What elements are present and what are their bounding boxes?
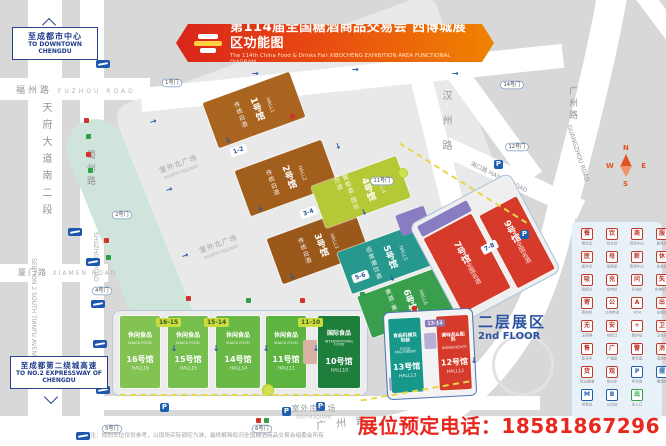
metro-icon xyxy=(93,340,107,348)
connector-15-14: 15-14 xyxy=(204,318,229,327)
route-arrow: → xyxy=(211,345,219,352)
legend-item: + 救护站 xyxy=(625,320,649,339)
legend-icon: 新 xyxy=(631,251,643,263)
legend-item: 问 问询处 xyxy=(625,274,649,293)
parking-icon: P xyxy=(160,403,169,412)
south-feature-block xyxy=(303,340,317,364)
facility-icon xyxy=(84,118,89,123)
legend-icon: 失 xyxy=(656,274,666,286)
legend-item: A ATM xyxy=(625,297,649,316)
gate-4: 4号门 xyxy=(92,287,112,296)
legend-icon: 摆 xyxy=(656,366,666,378)
legend-item: 医 医疗点 xyxy=(575,251,599,270)
legend-icon: 饮 xyxy=(606,228,618,240)
phone-label: 展位预定电话： xyxy=(358,410,502,439)
legend-icon: 广 xyxy=(606,343,618,355)
legend-panel: 餐 餐饮区 饮 饮水处 商 商务中心 服 服务处 医 医疗点 xyxy=(572,222,662,420)
legend-icon: B xyxy=(606,389,618,401)
sign-to-expressway: 至成都第二绕城高速 TO NO.2 EXPRESSWAY OF CHENGDU xyxy=(10,356,108,389)
legend-icon: 卫 xyxy=(656,320,666,332)
legend-item: B 公交站 xyxy=(600,389,624,408)
facility-icon xyxy=(88,168,93,173)
legend-icon: + xyxy=(631,320,643,332)
legend-item: 消 消防栓 xyxy=(650,343,666,362)
facility-icon xyxy=(300,298,305,303)
compass-needle-icon xyxy=(618,154,634,178)
route-arrow: → xyxy=(469,357,477,364)
legend-icon: 观 xyxy=(606,366,618,378)
facility-icon xyxy=(86,152,91,157)
legend-icon: 公 xyxy=(606,297,618,309)
gate-1: 1号门 xyxy=(162,79,182,88)
route-arrow: → xyxy=(252,70,259,78)
legend-icon: P xyxy=(631,366,643,378)
legend-item: 警 警务室 xyxy=(625,343,649,362)
legend-icon: 出 xyxy=(631,389,643,401)
road-label-shuzhou-zh: 蜀州路 xyxy=(84,150,97,220)
route-arrow: → xyxy=(452,70,459,78)
metro-icon xyxy=(86,258,100,266)
roundabout-pond xyxy=(398,168,408,178)
metro-icon xyxy=(96,60,110,68)
route-dash xyxy=(120,394,360,396)
legend-icon: 安 xyxy=(606,320,618,332)
lavender-block xyxy=(424,333,437,350)
fair-logo-icon xyxy=(194,34,222,53)
exhibition-map: 福州路 FUZHOU ROAD 天府大道南二段 SECTION 2 SOUTH … xyxy=(0,0,666,446)
metro-icon xyxy=(91,300,105,308)
sign-to-downtown: 至成都市中心 TO DOWNTOWN CHENGDU xyxy=(12,27,98,60)
facility-icon xyxy=(86,134,91,139)
road-label-tianfu-zh: 天府大道南二段 xyxy=(38,102,53,277)
legend-icon: 母 xyxy=(606,251,618,263)
legend-icon: 服 xyxy=(656,228,666,240)
route-arrow: → xyxy=(311,345,319,352)
legend-item: 出 出租车 xyxy=(650,297,666,316)
legend-icon: 问 xyxy=(631,274,643,286)
legend-icon: 货 xyxy=(581,366,593,378)
legend-item: M 地铁站 xyxy=(575,389,599,408)
legend-icon: 售 xyxy=(581,343,593,355)
legend-item: 售 售卖亭 xyxy=(575,343,599,362)
page-title: 第114届全国糖酒商品交易会 西博城展区功能图 xyxy=(230,20,476,51)
legend-item: 充 充电处 xyxy=(600,274,624,293)
gate-11: 11号门 xyxy=(370,177,393,186)
facility-icon xyxy=(360,292,365,297)
legend-icon: 消 xyxy=(656,343,666,355)
legend-icon: 出 xyxy=(656,297,666,309)
legend-icon: 充 xyxy=(606,274,618,286)
gate-2: 2号门 xyxy=(112,211,132,220)
legend-item: 失 失物招领 xyxy=(650,274,666,293)
connector-11-10: 11-10 xyxy=(298,318,323,327)
legend-icon: 休 xyxy=(656,251,666,263)
legend-icon: 吸 xyxy=(581,274,593,286)
facility-icon xyxy=(106,255,111,260)
route-arrow: → xyxy=(352,66,359,74)
metro-icon xyxy=(76,432,90,440)
facility-icon xyxy=(264,418,269,423)
legend-item: 公 公用电话 xyxy=(600,297,624,316)
facility-icon xyxy=(412,306,417,311)
facility-icon xyxy=(290,114,295,119)
legend-item: 出 出入口 xyxy=(625,389,649,408)
legend-icon: 警 xyxy=(631,343,643,355)
legend-item: 餐 餐饮区 xyxy=(575,228,599,247)
connector-13-12: 13-12 xyxy=(425,319,446,327)
legend-item: 吸 吸烟点 xyxy=(575,274,599,293)
facility-icon xyxy=(256,418,261,423)
legend-item: 卫 卫生间 xyxy=(650,320,666,339)
legend-item: 休 休息区 xyxy=(650,251,666,270)
legend-item: 母 母婴室 xyxy=(600,251,624,270)
legend-icon: 医 xyxy=(581,251,593,263)
legend-item: 新 新闻中心 xyxy=(625,251,649,270)
legend-icon: 无 xyxy=(581,320,593,332)
legend-item: 安 安检口 xyxy=(600,320,624,339)
gate-14: 14号门 xyxy=(500,81,523,90)
facility-icon xyxy=(246,298,251,303)
legend-icon: M xyxy=(581,389,593,401)
second-floor-label: 二层展区 2nd FLOOR xyxy=(478,314,546,343)
booking-phone: 展位预定电话： 18581867296 xyxy=(358,410,660,439)
legend-item: 广 广播室 xyxy=(600,343,624,362)
road-label-xiamen: 厦门路 XIAMEN ROAD xyxy=(18,267,117,278)
facility-icon xyxy=(186,296,191,301)
title-banner: 第114届全国糖酒商品交易会 西博城展区功能图 The 114th China … xyxy=(176,24,494,62)
metro-icon xyxy=(68,228,82,236)
legend-item: 观 观光车 xyxy=(600,366,624,385)
map-footnote: 注：规划车位仅供参考，以现场实际调控为准，最终解释权归全国糖酒商品交易会组委会所… xyxy=(90,430,324,439)
legend-item: P 停车场 xyxy=(625,366,649,385)
parking-icon: P xyxy=(494,160,503,169)
route-arrow: → xyxy=(261,345,269,352)
legend-icon: A xyxy=(631,297,643,309)
gate-12: 12号门 xyxy=(505,143,528,152)
compass-rose: N E S W xyxy=(604,144,648,188)
legend-icon: 商 xyxy=(631,228,643,240)
phone-number: 18581867296 xyxy=(501,414,660,438)
legend-item: 商 商务中心 xyxy=(625,228,649,247)
legend-item: 服 服务处 xyxy=(650,228,666,247)
parking-icon: P xyxy=(520,230,529,239)
legend-item: 货 货运通道 xyxy=(575,366,599,385)
route-arrow: → xyxy=(169,345,177,352)
legend-item: 无 无障碍 xyxy=(575,320,599,339)
legend-item: 寄 寄存处 xyxy=(575,297,599,316)
hall-10: 国际食品INTERNATIONAL FOOD 10号馆HALL10 xyxy=(318,316,360,388)
plaza-ring xyxy=(492,334,554,396)
hall-13: 食品机械及包装 FOOD MACHINERY 13号馆 HALL13 xyxy=(388,317,424,393)
south-square-label: 室外南广场SOUTH SQUARE xyxy=(290,404,338,422)
facility-icon xyxy=(104,238,109,243)
legend-item: 摆 摆渡车 xyxy=(650,366,666,385)
hall-16: 休闲食品SNACK FOOD 16号馆HALL16 xyxy=(120,316,160,388)
road-label-fuzhou: 福州路 FUZHOU ROAD xyxy=(16,83,136,96)
legend-icon: 餐 xyxy=(581,228,593,240)
legend-item: 饮 饮水处 xyxy=(600,228,624,247)
connector-16-15: 16-15 xyxy=(156,318,181,327)
legend-icon: 寄 xyxy=(581,297,593,309)
